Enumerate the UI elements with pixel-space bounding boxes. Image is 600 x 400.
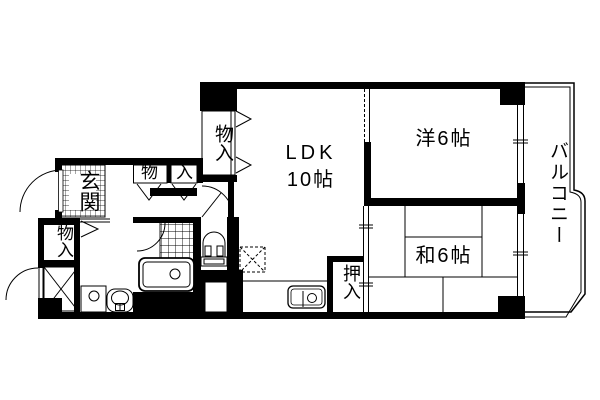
wall-oshiire-left [327,256,333,312]
wall-toilet-right [227,217,239,272]
wall-western-japanese-divider [364,198,525,206]
kitchen-sink-inner [291,289,322,305]
wall-stub-mono-iri [167,158,171,183]
wall-top [200,82,525,89]
toilet-base [201,257,227,266]
toilet-seat-right [217,246,223,256]
toilet-seat-left [205,246,211,256]
pipe-space [205,282,227,312]
entrance-door-leaf [59,170,64,212]
wall-block-topright [500,82,525,105]
bathtub [139,258,194,291]
washing-machine-drain-icon [89,291,99,301]
kitchen [240,247,327,308]
floor-plan: 玄関 物入 物入 物 入 LDK 10帖 洋6帖 和6帖 押入 バルコニー [0,0,600,400]
storage-left-label: 物入 [48,224,72,266]
ldk-label-line2: 10帖 [261,170,361,192]
washroom [81,286,133,312]
wall-bottom [38,312,525,319]
wall-ldk-western-divider [364,142,371,206]
ldk-label-line1: LDK [261,143,361,165]
balcony-label: バルコニー [543,141,567,266]
storage-top-label: 物入 [208,124,232,174]
bifold-door-icon [81,221,98,237]
walls [38,82,525,319]
wall-block-topleft-ldk [200,82,237,111]
bathroom [137,222,195,291]
entrance-door-arc [20,170,62,212]
washing-machine-pan [81,286,106,312]
storage-mono-label: 物 [141,164,158,182]
oshiire-label: 押入 [336,264,360,310]
bifold-door-icon [236,157,251,173]
wall-block-bottomleft-over [38,298,62,316]
refrigerator-space [240,247,265,272]
toilet-base-inner [204,259,224,264]
japanese-room-label: 和6帖 [394,246,494,268]
wash-basin-bowl [112,291,129,305]
bath-tile-wall [160,222,195,261]
wall-storage-stub [202,175,237,182]
toilet-door-leaf [202,193,221,217]
bifold-door-icon [236,111,251,127]
storage-iri-label: 入 [176,164,193,182]
wall-bath-bottom-block [133,292,201,319]
meter-box-door-arc [6,268,38,300]
western-room-label: 洋6帖 [394,129,494,151]
toilet-bowl [203,232,225,257]
kitchen-drain-icon [308,294,317,303]
wall-block-bottomright [498,296,525,313]
genkan-label: 玄関 [73,170,99,220]
